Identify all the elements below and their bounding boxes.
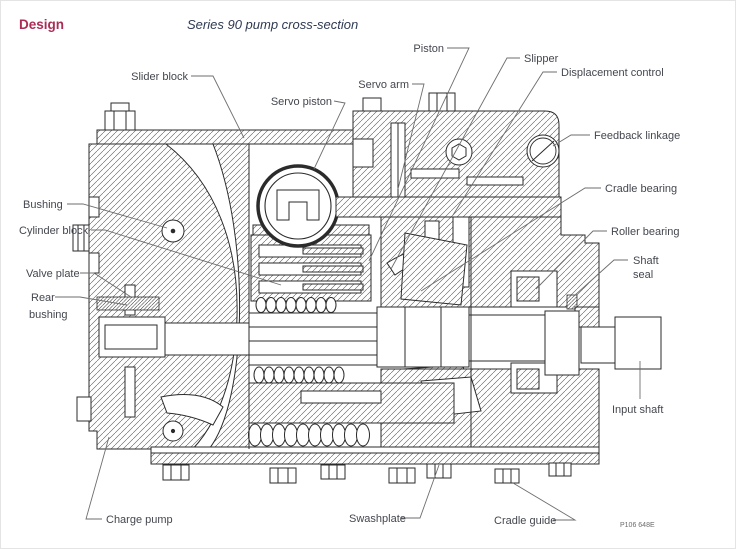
label-servo-arm: Servo arm — [358, 79, 409, 91]
manual-page: Design Series 90 pump cross-section — [0, 0, 736, 549]
label-servo-piston: Servo piston — [271, 96, 332, 108]
rear-bushing-part — [97, 297, 159, 310]
displacement-control-part — [353, 93, 559, 197]
section-label: Design — [19, 17, 64, 32]
swashplate-part — [401, 233, 467, 305]
rear-housing — [73, 103, 249, 465]
label-slider-block: Slider block — [131, 71, 188, 83]
piston-part — [303, 248, 363, 254]
label-valve-plate: Valve plate — [26, 268, 80, 280]
label-cylinder-block: Cylinder block — [19, 225, 89, 237]
page-title: Series 90 pump cross-section — [187, 17, 358, 32]
label-cradle-guide: Cradle guide — [494, 515, 556, 527]
cradle-guide-part — [495, 469, 519, 483]
label-displacement-control: Displacement control — [561, 67, 664, 79]
label-charge-pump: Charge pump — [106, 514, 173, 526]
pump-drawing — [73, 93, 661, 483]
bolt-head — [105, 111, 135, 131]
servo-piston-part — [258, 166, 338, 246]
label-roller-bearing: Roller bearing — [611, 226, 679, 238]
label-bushing: Bushing — [23, 199, 63, 211]
label-piston: Piston — [413, 43, 444, 55]
label-cradle-bearing: Cradle bearing — [605, 183, 677, 195]
label-swashplate: Swashplate — [349, 513, 406, 525]
figure-number: P106 648E — [620, 522, 655, 529]
hex-bolt — [163, 463, 571, 483]
label-feedback-linkage: Feedback linkage — [594, 130, 680, 142]
label-slipper: Slipper — [524, 53, 559, 65]
pump-cross-section-diagram: Design Series 90 pump cross-section — [1, 1, 736, 549]
piston-part — [303, 266, 363, 272]
label-shaft-seal: Shaft — [633, 255, 659, 267]
label-rear-bushing: bushing — [29, 309, 68, 321]
bottom-mount — [151, 447, 599, 483]
label-shaft-seal: seal — [633, 269, 653, 281]
label-input-shaft: Input shaft — [612, 404, 663, 416]
piston-part — [303, 284, 363, 290]
label-rear-bushing: Rear — [31, 292, 55, 304]
